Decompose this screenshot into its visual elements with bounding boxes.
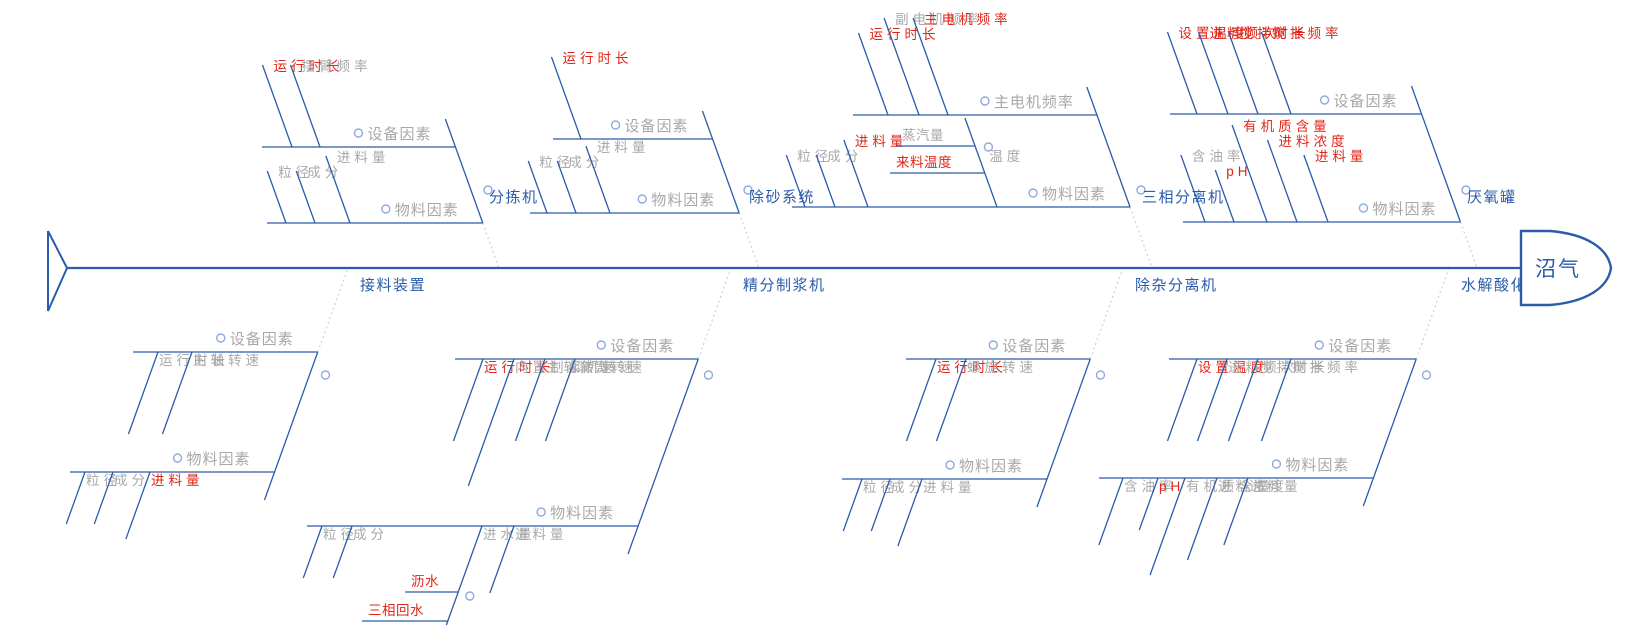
fishbone-svg: 分拣机设备因素运行时长摆臂频率物料因素粒径成分进料量除砂系统设备因素运行时长物料… xyxy=(0,0,1628,642)
leaf-label: 有机质含量 xyxy=(1243,119,1331,134)
branch-label: 除砂系统 xyxy=(749,189,815,206)
subleaf-label: 沥水 xyxy=(411,574,439,589)
leaf-label: 进料浓度 xyxy=(1278,134,1348,149)
bone-label: 设备因素 xyxy=(1328,338,1392,355)
branch-label: 除杂分离机 xyxy=(1135,277,1218,294)
branch-label: 接料装置 xyxy=(360,277,426,294)
leaf-line xyxy=(262,65,292,147)
bone-label: 设备因素 xyxy=(610,338,674,355)
fish-tail-line xyxy=(48,231,67,268)
leaf-line xyxy=(1198,32,1228,114)
leaf-label: 成分 xyxy=(114,473,149,488)
branch-diagonal-dotted xyxy=(1460,222,1477,268)
leaf-label: 运行时长 xyxy=(869,27,939,42)
branch-diagonal-dotted xyxy=(1090,268,1123,359)
leaf-label: 成分 xyxy=(827,149,862,164)
leaf-label: 成分 xyxy=(307,165,342,180)
branch-label: 厌氧罐 xyxy=(1467,189,1517,206)
bone-node-circle xyxy=(989,341,997,349)
sub-branch-node-circle xyxy=(466,592,474,600)
branch-diagonal xyxy=(1363,359,1416,506)
bone-label: 物料因素 xyxy=(550,505,614,522)
leaf-line xyxy=(66,472,85,524)
branch-diagonal xyxy=(264,352,317,500)
bone-node-circle xyxy=(537,508,545,516)
branch-node-circle xyxy=(321,371,329,379)
bone-node-circle xyxy=(638,195,646,203)
leaf-line xyxy=(858,33,888,115)
branch-label: 分拣机 xyxy=(489,189,539,206)
branch-diagonal xyxy=(628,359,698,554)
leaf-line xyxy=(468,359,514,486)
bone-node-circle xyxy=(1272,460,1280,468)
leaf-line xyxy=(1099,478,1123,545)
fishbone-diagram: 分拣机设备因素运行时长摆臂频率物料因素粒径成分进料量除砂系统设备因素运行时长物料… xyxy=(0,0,1628,642)
bone-node-circle xyxy=(382,205,390,213)
bone-label: 物料因素 xyxy=(1372,201,1436,218)
leaf-label: 主轴转速 xyxy=(193,353,263,368)
leaf-line xyxy=(1267,140,1297,222)
leaf-label: 成分 xyxy=(353,527,388,542)
leaf-label: 含油率 xyxy=(1192,148,1245,164)
branch-diagonal xyxy=(1037,359,1090,507)
bone-node-circle xyxy=(612,121,620,129)
branch-diagonal-dotted xyxy=(1416,268,1449,359)
leaf-line xyxy=(1167,359,1197,441)
leaf-line xyxy=(551,57,581,139)
branch-diagonal-dotted xyxy=(483,223,499,268)
branch-node-circle xyxy=(704,371,712,379)
subleaf-label: 三相回水 xyxy=(368,603,424,618)
leaf-line xyxy=(843,479,862,531)
leaf-label: 进料量 xyxy=(1249,479,1302,494)
leaf-line xyxy=(906,359,936,441)
bone-node-circle xyxy=(174,454,182,462)
branch-label: 精分制浆机 xyxy=(743,276,826,294)
leaf-label: 搅拌频率 xyxy=(1272,25,1342,41)
bone-label: 设备因素 xyxy=(230,331,294,348)
bone-label: 物料因素 xyxy=(1285,457,1349,474)
branch-diagonal-dotted xyxy=(739,213,759,268)
leaf-line xyxy=(1167,32,1197,114)
bone-node-circle xyxy=(1359,204,1367,212)
bone-label: 物料因素 xyxy=(651,192,715,209)
leaf-line xyxy=(128,352,158,434)
leaf-label: 进料量 xyxy=(923,480,976,495)
bone-label: 主电机频率 xyxy=(994,94,1074,111)
bone-node-circle xyxy=(1315,341,1323,349)
leaf-label: 温度 xyxy=(989,149,1024,164)
leaf-label: 螺旋转速 xyxy=(967,360,1037,375)
branch-diagonal-dotted xyxy=(318,268,348,352)
bone-label: 物料因素 xyxy=(1042,186,1106,203)
sub-branch-diagonal xyxy=(446,526,482,625)
bone-label: 设备因素 xyxy=(1002,338,1066,355)
subleaf-label: 蒸汽量 xyxy=(902,128,944,143)
branch-node-circle xyxy=(1096,371,1104,379)
leaf-label: 进料量 xyxy=(337,150,390,165)
leaf-line xyxy=(303,526,322,578)
bone-node-circle xyxy=(1029,189,1037,197)
bone-label: 设备因素 xyxy=(1334,93,1398,110)
bone-label: 物料因素 xyxy=(395,202,459,219)
branch-diagonal-dotted xyxy=(1130,207,1152,268)
leaf-line xyxy=(1304,155,1328,222)
leaf-label: 进料量 xyxy=(1315,149,1368,164)
leaf-label: 进料量 xyxy=(515,527,568,542)
leaf-label: 进料量 xyxy=(597,140,650,155)
leaf-label: 进料量 xyxy=(151,473,204,488)
fish-tail-line xyxy=(48,268,67,311)
bone-label: 物料因素 xyxy=(959,458,1023,475)
branch-node-circle xyxy=(1422,371,1430,379)
leaf-label: 运行时长 xyxy=(562,51,632,66)
bone-node-circle xyxy=(1321,96,1329,104)
bone-node-circle xyxy=(981,97,989,105)
bone-label: 物料因素 xyxy=(187,451,251,468)
leaf-label: 摆臂频率 xyxy=(301,58,371,74)
branch-label: 三相分离机 xyxy=(1142,189,1225,206)
leaf-line xyxy=(1261,32,1291,114)
bone-node-circle xyxy=(946,461,954,469)
leaf-label: pH xyxy=(1226,164,1251,179)
branch-diagonal-dotted xyxy=(698,268,731,359)
bone-label: 设备因素 xyxy=(367,126,431,143)
bone-node-circle xyxy=(354,129,362,137)
bone-node-circle xyxy=(597,341,605,349)
leaf-label: 滚筒转速 xyxy=(576,359,646,375)
bone-node-circle xyxy=(217,334,225,342)
leaf-line xyxy=(1228,32,1258,114)
leaf-label: 进料量 xyxy=(855,134,908,149)
leaf-label: 主电机频率 xyxy=(924,11,1012,27)
bone-label: 设备因素 xyxy=(625,118,689,135)
leaf-line xyxy=(290,65,320,147)
leaf-label: 成分 xyxy=(568,155,603,170)
leaf-line xyxy=(453,359,483,441)
subleaf-label: 来料温度 xyxy=(896,155,952,170)
head-label: 沼气 xyxy=(1535,258,1581,281)
leaf-label: 搅拌频率 xyxy=(1292,359,1362,375)
